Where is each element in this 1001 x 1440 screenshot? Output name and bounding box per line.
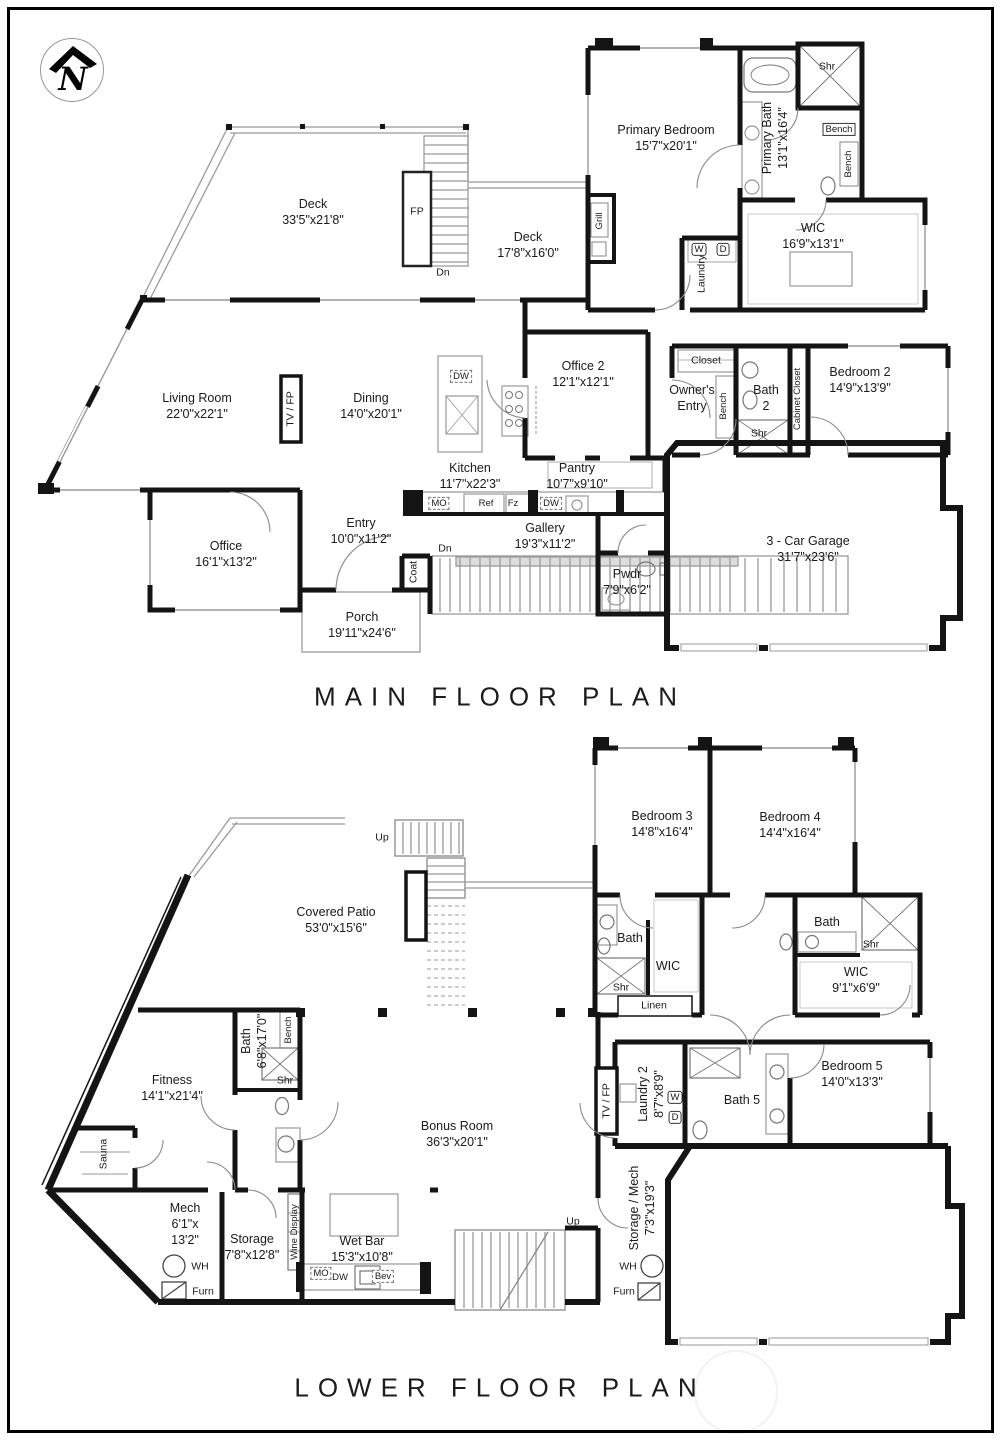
- room-label-fitness: Fitness 14'1"x21'4": [141, 1072, 203, 1104]
- room-name: Porch: [328, 609, 396, 625]
- room-dims: 13'1"x16'4": [775, 102, 791, 174]
- room-dims: 14'0"x13'3": [821, 1074, 883, 1090]
- room-name: Bedroom 2: [829, 364, 891, 380]
- room-name: Fitness: [141, 1072, 203, 1088]
- room-label-powder: Pwdr 7'9"x6'2": [603, 566, 651, 598]
- room-dims: 16'9"x13'1": [782, 236, 844, 252]
- room-label-living-room: Living Room 22'0"x22'1": [162, 390, 231, 422]
- room-label-linen: Linen: [641, 999, 667, 1012]
- room-dims: 14'1"x21'4": [141, 1088, 203, 1104]
- room-label-covered-patio: Covered Patio 53'0"x15'6": [296, 904, 375, 936]
- label-washer-lower: W: [668, 1092, 683, 1104]
- range-burners: [506, 386, 537, 436]
- room-dims: 6'8"x17'0": [254, 1014, 270, 1069]
- room-name: Primary Bedroom: [617, 122, 714, 138]
- label-beverage-fridge: Bev: [372, 1271, 394, 1283]
- room-name: Covered Patio: [296, 904, 375, 920]
- room-dims: 19'3"x11'2": [515, 536, 576, 552]
- label-grill: Grill: [592, 215, 609, 227]
- room-dims: 9'1"x6'9": [832, 980, 880, 996]
- room-name: Deck: [282, 196, 344, 212]
- room-label-wic-4: WIC 9'1"x6'9": [832, 964, 880, 996]
- lower-floor-title: LOWER FLOOR PLAN: [294, 1373, 705, 1404]
- label-shower-bath4: Shr: [863, 938, 879, 951]
- room-label-entry: Entry 10'0"x11'2": [331, 515, 392, 547]
- room-dims: 15'7"x20'1": [617, 138, 714, 154]
- room-name: Pwdr: [603, 566, 651, 582]
- room-label-garage: 3 - Car Garage 31'7"x23'6": [766, 533, 849, 565]
- room-name: Office 2: [552, 358, 614, 374]
- label-water-heater-mech: WH: [191, 1260, 209, 1273]
- room-name: Bonus Room: [421, 1118, 493, 1134]
- label-coat-closet: Coat: [403, 565, 425, 578]
- label-tv-fireplace: TV / FP: [273, 402, 309, 415]
- bench-box: Bench: [823, 123, 856, 136]
- room-dims: 7'8"x12'8": [225, 1247, 280, 1263]
- dryer-box: D: [717, 243, 730, 256]
- label-shower-bath3: Shr: [613, 981, 629, 994]
- room-name: 3 - Car Garage: [766, 533, 849, 549]
- label-bench-c: Bench: [711, 400, 738, 412]
- label-bench-a: Bench: [823, 124, 856, 136]
- label-dryer: D: [717, 244, 730, 256]
- label-dishwasher-island: DW: [450, 371, 472, 383]
- room-dims: 11'7"x22'3": [440, 476, 501, 492]
- label-bench-b: Bench: [836, 158, 863, 170]
- label-stairs-down-deck: Dn: [436, 266, 449, 279]
- floor-plan-drawing: [0, 0, 1001, 1440]
- room-label-office: Office 16'1"x13'2": [195, 538, 257, 570]
- room-name: Entry: [331, 515, 392, 531]
- room-dims: 10'0"x11'2": [331, 531, 392, 547]
- room-label-wic: WIC 16'9"x13'1": [782, 220, 844, 252]
- room-label-laundry: Laundry: [683, 267, 721, 280]
- room-dims: 10'7"x9'10": [546, 476, 608, 492]
- label-stairs-down-gallery: Dn: [438, 542, 451, 555]
- room-name: Pantry: [546, 460, 608, 476]
- label-freezer: Fz: [508, 498, 519, 510]
- room-dims: 19'11"x24'6": [328, 625, 396, 641]
- room-dims: 14'0"x20'1": [340, 406, 402, 422]
- label-shower-primary: Shr: [819, 60, 835, 73]
- room-dims: 7'3"x19'3": [642, 1166, 658, 1251]
- room-name: Living Room: [162, 390, 231, 406]
- room-label-kitchen: Kitchen 11'7"x22'3": [440, 460, 501, 492]
- room-dims: 6'1"x: [170, 1216, 201, 1232]
- room-label-office-2: Office 2 12'1"x12'1": [552, 358, 614, 390]
- room-dims: 36'3"x20'1": [421, 1134, 493, 1150]
- label-washer: W: [692, 244, 707, 256]
- room-label-primary-bath: Primary Bath 13'1"x16'4": [739, 122, 811, 154]
- room-label-bedroom-4: Bedroom 4 14'4"x16'4": [759, 809, 821, 841]
- room-name: WIC: [832, 964, 880, 980]
- room-label-deck-1: Deck 33'5"x21'8": [282, 196, 344, 228]
- label-tv-fireplace-lower: TV / FP: [589, 1094, 625, 1107]
- room-dims: 12'1"x12'1": [552, 374, 614, 390]
- room-label-bonus-room: Bonus Room 36'3"x20'1": [421, 1118, 493, 1150]
- label-dryer-lower: D: [669, 1112, 682, 1124]
- label-furnace-mech: Furn: [192, 1285, 214, 1298]
- room-name: Laundry 2: [635, 1066, 651, 1122]
- room-label-mech: Mech 6'1"x 13'2": [170, 1200, 201, 1248]
- label-shower-fitness: Shr: [277, 1074, 293, 1087]
- label-stairs-up: Up: [375, 831, 388, 844]
- room-label-bedroom-2: Bedroom 2 14'9"x13'9": [829, 364, 891, 396]
- room-label-porch: Porch 19'11"x24'6": [328, 609, 396, 641]
- room-label-pantry: Pantry 10'7"x9'10": [546, 460, 608, 492]
- room-name: Office: [195, 538, 257, 554]
- room-dims: 53'0"x15'6": [296, 920, 375, 936]
- room-dims: 14'9"x13'9": [829, 380, 891, 396]
- room-label-sauna: Sauna: [89, 1147, 119, 1160]
- label-bench-fitness: Bench: [276, 1024, 303, 1036]
- room-label-bath-fitness: Bath 6'8"x17'0": [227, 1025, 282, 1057]
- dishwasher-box: DW: [450, 370, 472, 383]
- room-label-deck-2: Deck 17'8"x16'0": [497, 229, 559, 261]
- label-fireplace: FP: [410, 205, 423, 218]
- label-water-heater-storage: WH: [619, 1260, 637, 1273]
- room-dims: 17'8"x16'0": [497, 245, 559, 261]
- patio-dashed-lines: [427, 906, 465, 1005]
- room-name: Primary Bath: [759, 102, 775, 174]
- room-dims: 7'9"x6'2": [603, 582, 651, 598]
- label-dishwasher-lower: DW: [332, 1272, 348, 1284]
- room-dims: 14'8"x16'4": [631, 824, 693, 840]
- room-label-wic-3: WIC: [656, 958, 680, 974]
- label-microwave-lower: MO: [310, 1268, 331, 1280]
- room-name: Dining: [340, 390, 402, 406]
- room-label-storage-mech: Storage / Mech 7'3"x19'3": [600, 1192, 685, 1224]
- room-dims: 13'2": [170, 1232, 201, 1248]
- room-name: Bedroom 5: [821, 1058, 883, 1074]
- room-name: Mech: [170, 1200, 201, 1216]
- label-stairs-up-2: Up: [566, 1215, 579, 1228]
- room-name: Kitchen: [440, 460, 501, 476]
- room-label-primary-bedroom: Primary Bedroom 15'7"x20'1": [617, 122, 714, 154]
- room-label-dining: Dining 14'0"x20'1": [340, 390, 402, 422]
- room-label-bath-3: Bath: [617, 930, 643, 946]
- label-wine-display: Wine Display: [267, 1226, 322, 1238]
- room-dims: 31'7"x23'6": [766, 549, 849, 565]
- label-dishwasher-counter: DW: [540, 498, 562, 510]
- room-name: Wet Bar: [331, 1233, 393, 1249]
- label-microwave: MO: [428, 498, 449, 510]
- floor-plan-sheet: N Deck 33'5"x21'8" FP Dn Deck 17'8"x16'0…: [0, 0, 1001, 1440]
- room-dims: 16'1"x13'2": [195, 554, 257, 570]
- room-dims: 14'4"x16'4": [759, 825, 821, 841]
- room-name: Deck: [497, 229, 559, 245]
- room-label-gallery: Gallery 19'3"x11'2": [515, 520, 576, 552]
- watermark-circle: [694, 1350, 778, 1434]
- room-dims: 8'7"x8'9": [651, 1066, 667, 1122]
- washer-box: W: [692, 243, 707, 256]
- room-name: Storage / Mech: [626, 1166, 642, 1251]
- room-name: Bedroom 3: [631, 808, 693, 824]
- room-label-bedroom-3: Bedroom 3 14'8"x16'4": [631, 808, 693, 840]
- room-label-bath-4: Bath: [814, 914, 840, 930]
- room-label-wet-bar: Wet Bar 15'3"x10'8": [331, 1233, 393, 1265]
- company-logo: N: [38, 36, 106, 104]
- room-dims: 33'5"x21'8": [282, 212, 344, 228]
- room-dims: 22'0"x22'1": [162, 406, 231, 422]
- label-furnace-storage: Furn: [613, 1285, 635, 1298]
- room-label-bath-5: Bath 5: [724, 1092, 760, 1108]
- room-name: Bedroom 4: [759, 809, 821, 825]
- room-dims: 15'3"x10'8": [331, 1249, 393, 1265]
- main-floor-title: MAIN FLOOR PLAN: [314, 682, 686, 713]
- room-label-closet: Closet: [691, 354, 721, 367]
- label-cabinet-closet: Cabinet Closet: [767, 393, 829, 405]
- fireplace-boxes: [281, 172, 692, 1134]
- room-name: Bath: [238, 1014, 254, 1069]
- room-label-bedroom-5: Bedroom 5 14'0"x13'3": [821, 1058, 883, 1090]
- logo-letter: N: [57, 60, 89, 98]
- room-name: Gallery: [515, 520, 576, 536]
- label-shower-bath2: Shr: [751, 427, 767, 440]
- label-refrigerator: Ref: [479, 498, 494, 510]
- room-name: WIC: [782, 220, 844, 236]
